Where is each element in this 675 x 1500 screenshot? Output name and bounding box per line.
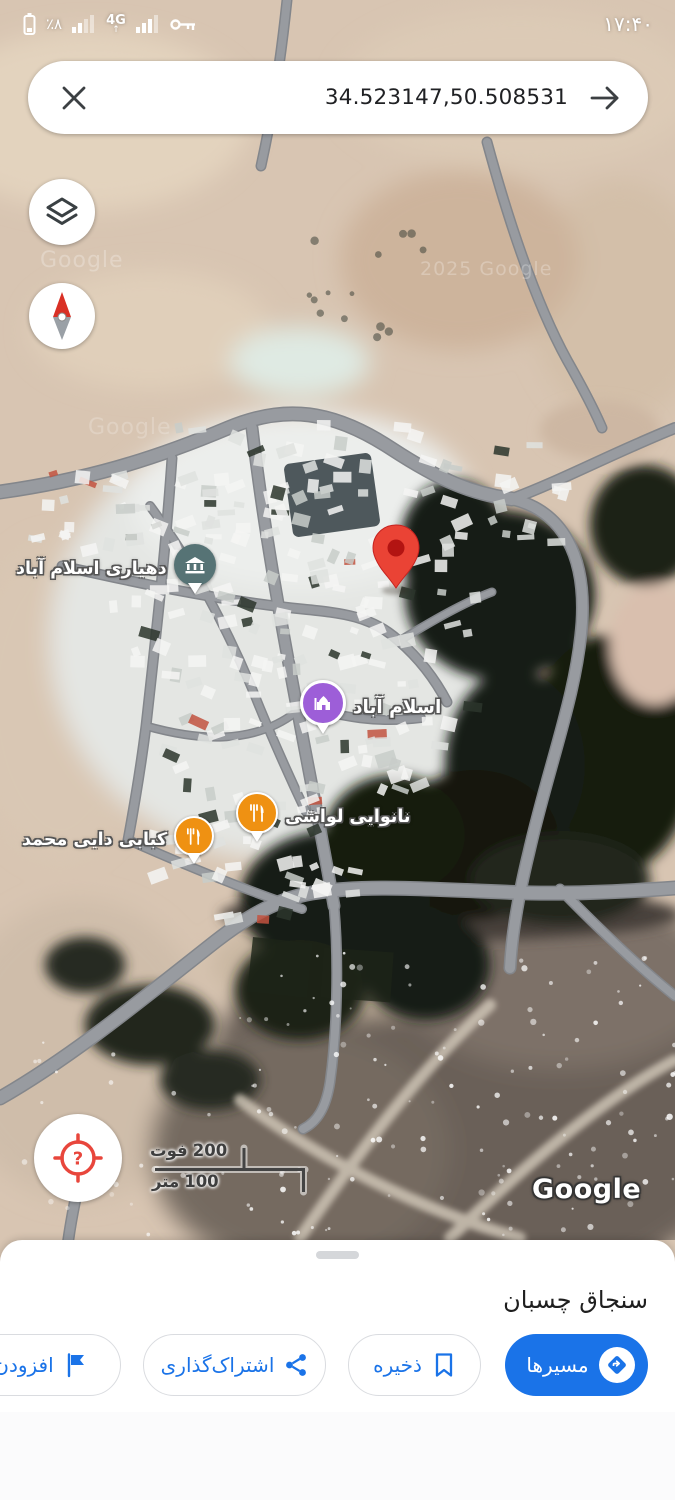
poi-bakery[interactable]: نانوایی لواشی [236, 792, 411, 842]
restaurant-pin-icon [236, 792, 278, 842]
bottom-sheet[interactable]: سنجاق چسبان مسیرها ذخیره [0, 1240, 675, 1412]
add-label-text: افزودن بر [0, 1353, 54, 1377]
close-icon[interactable] [52, 76, 96, 120]
compass-icon [42, 290, 82, 342]
signal-bars-icon [71, 14, 97, 34]
bookmark-icon [432, 1352, 456, 1378]
copyright-watermark: 2025 Google [420, 258, 552, 280]
restaurant-pin-icon-2 [174, 816, 214, 864]
layers-button[interactable] [29, 179, 95, 245]
sheet-title: سنجاق چسبان [503, 1286, 648, 1314]
status-bar: ٪۸ 4G ↑ ۱۷: [0, 0, 675, 48]
scale-meters-label: متر100 [152, 1172, 219, 1191]
status-time: ۱۷:۴۰ [603, 12, 653, 36]
svg-text:?: ? [73, 1149, 83, 1170]
poi-mosque-label: اسلام آباد [353, 697, 441, 718]
drag-handle[interactable] [316, 1251, 359, 1259]
poi-village-office-label: دهیاری اسلام آباد [16, 559, 167, 579]
flag-icon [64, 1352, 88, 1378]
status-icons: ٪۸ 4G ↑ [22, 12, 197, 36]
my-location-button[interactable]: ? [34, 1114, 122, 1202]
action-buttons-row: مسیرها ذخیره اشتراک‌گذاری [0, 1334, 675, 1396]
save-label: ذخیره [373, 1353, 422, 1377]
dropped-pin[interactable] [372, 524, 420, 590]
directions-icon [599, 1347, 635, 1383]
share-icon [284, 1352, 308, 1378]
poi-kebab[interactable]: کبابی دایی محمد [22, 816, 214, 864]
mosque-pin-icon [300, 680, 346, 734]
poi-village-office[interactable]: دهیاری اسلام آباد [16, 544, 216, 594]
signal-bars-icon-2 [135, 14, 161, 34]
satellite-map[interactable] [0, 0, 675, 1240]
battery-icon [22, 12, 37, 36]
google-maps-app: Google 2025 Google Google ٪۸ 4G ↑ [0, 0, 675, 1500]
directions-button[interactable]: مسیرها [505, 1334, 648, 1396]
battery-percent: ٪۸ [46, 15, 62, 33]
search-query[interactable]: 34.523147,50.508531 [96, 85, 582, 110]
crosshair-question-icon: ? [50, 1130, 106, 1186]
poi-mosque[interactable]: اسلام آباد [300, 680, 441, 734]
layers-icon [45, 197, 79, 227]
poi-kebab-label: کبابی دایی محمد [22, 830, 167, 850]
submit-arrow-icon[interactable] [582, 76, 628, 120]
directions-label: مسیرها [526, 1353, 588, 1377]
government-pin-icon [174, 544, 216, 594]
google-watermark-2: Google [88, 415, 172, 440]
compass-button[interactable] [29, 283, 95, 349]
poi-bakery-label: نانوایی لواشی [285, 807, 411, 827]
share-label: اشتراک‌گذاری [161, 1353, 275, 1377]
search-bar[interactable]: 34.523147,50.508531 [28, 61, 648, 134]
add-label-button[interactable]: افزودن بر [0, 1334, 121, 1396]
share-button[interactable]: اشتراک‌گذاری [143, 1334, 326, 1396]
vpn-key-icon [170, 17, 197, 32]
save-button[interactable]: ذخیره [348, 1334, 481, 1396]
google-logo: Google [532, 1174, 641, 1205]
network-type-4g: 4G ↑ [106, 14, 126, 35]
system-nav-bar [0, 1412, 675, 1500]
google-watermark: Google [40, 248, 124, 273]
